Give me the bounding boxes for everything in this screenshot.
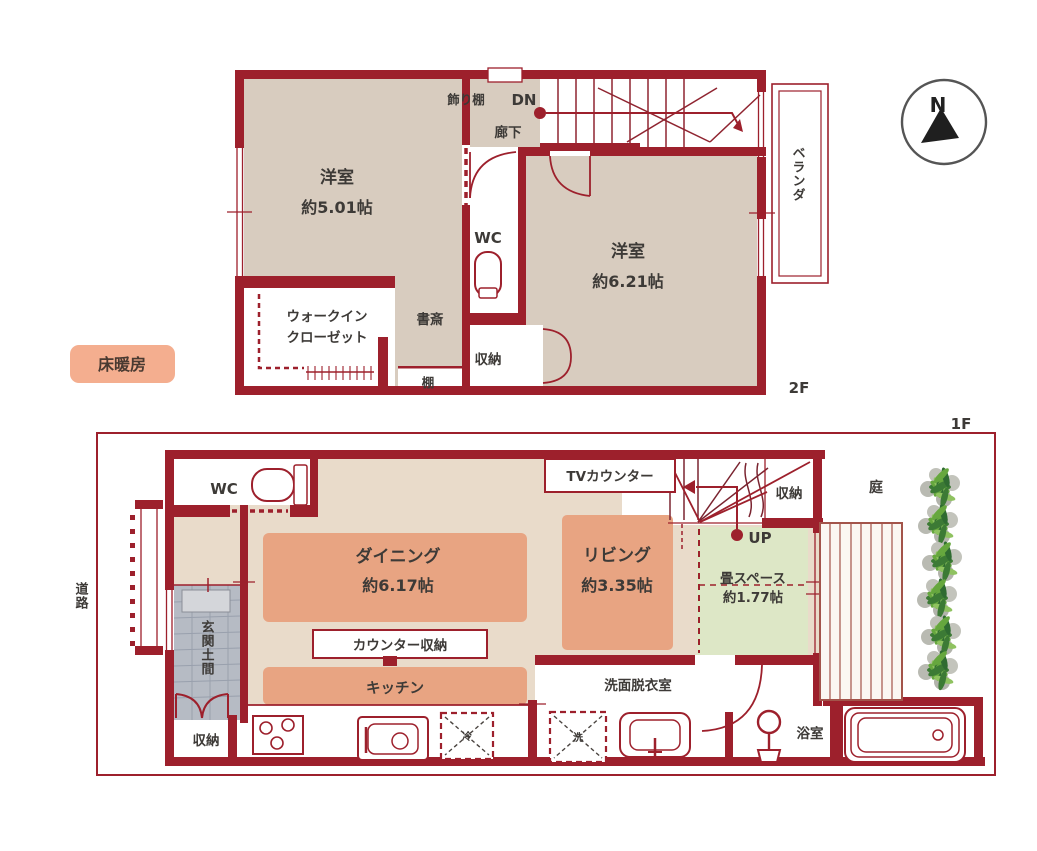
label-2f: 2F <box>789 379 810 397</box>
down-route <box>534 107 743 132</box>
bathtub-icon <box>845 708 965 762</box>
sink-icon <box>358 717 428 760</box>
label-corridor: 廊下 <box>495 124 523 141</box>
label-kitchen: キッチン <box>366 680 424 697</box>
label-road: 道路 <box>73 581 89 610</box>
garden-hedge <box>917 466 962 691</box>
plant-cluster <box>922 540 962 582</box>
toilet-1f-icon <box>252 465 307 505</box>
label-western-large-name: 洋室 <box>611 241 645 262</box>
plant-cluster <box>921 614 961 656</box>
label-living-size: 約3.35帖 <box>581 576 652 595</box>
stove-icon <box>253 716 303 754</box>
label-dining-size: 約6.17帖 <box>362 576 433 595</box>
floor-plan-svg: 飾り棚 DN 廊下 洋室 約5.01帖 WC 洋室 約6.21帖 ウォークイン … <box>0 0 1037 851</box>
label-counter-storage: カウンター収納 <box>353 637 448 654</box>
label-wic-line2: クローゼット <box>287 329 368 346</box>
label-garden: 庭 <box>869 479 884 496</box>
label-washroom: 洗面脱衣室 <box>604 677 672 694</box>
label-tv-counter: TVカウンター <box>566 469 653 485</box>
label-bathroom: 浴室 <box>797 725 825 742</box>
label-wic-line1: ウォークイン <box>287 309 368 325</box>
label-wc-2f: WC <box>474 229 502 247</box>
label-shelf: 棚 <box>422 375 435 390</box>
floor-plan-image: 飾り棚 DN 廊下 洋室 約5.01帖 WC 洋室 約6.21帖 ウォークイン … <box>0 0 1037 851</box>
label-western-large-size: 約6.21帖 <box>592 272 663 291</box>
vanity-icon <box>620 713 690 757</box>
label-living-name: リビング <box>583 545 651 566</box>
label-tatami-size: 約1.77帖 <box>723 589 784 606</box>
label-storage-upper: 収納 <box>776 485 803 502</box>
plant-cluster <box>918 503 958 545</box>
label-entrance: 玄関土間 <box>199 619 215 676</box>
label-fridge-mark: 冷 <box>462 730 472 743</box>
floor-heating-badge: 床暖房 <box>70 345 175 383</box>
wood-deck <box>820 523 902 700</box>
plant-cluster <box>917 577 957 619</box>
label-wc-1f: WC <box>210 480 238 498</box>
label-western-small-name: 洋室 <box>320 167 354 188</box>
floor-heating-label: 床暖房 <box>98 355 146 374</box>
label-veranda: ベランダ <box>790 146 806 202</box>
label-display-shelf: 飾り棚 <box>447 92 485 107</box>
label-western-small-size: 約5.01帖 <box>301 198 372 217</box>
label-dining-name: ダイニング <box>356 546 441 567</box>
floor1-plan: WC TVカウンター 収納 UP ダイニング 約6.17帖 リビング 約3.35… <box>73 415 996 775</box>
display-shelf-box <box>488 68 522 82</box>
plant-cluster <box>918 649 958 691</box>
compass: N <box>902 80 986 164</box>
shoe-cabinet <box>182 590 230 612</box>
room-2f-western-large-floor <box>526 156 757 386</box>
floor2-plan: 飾り棚 DN 廊下 洋室 約5.01帖 WC 洋室 約6.21帖 ウォークイン … <box>227 68 828 397</box>
label-tatami-name: 畳スペース <box>720 571 786 587</box>
entrance-porch <box>130 500 163 655</box>
toilet-2f-icon <box>475 252 501 298</box>
label-washer-mark: 洗 <box>573 731 583 744</box>
plant-cluster <box>920 466 960 508</box>
label-storage-lower: 収納 <box>193 732 220 749</box>
label-dn: DN <box>511 91 536 109</box>
label-up: UP <box>748 529 771 547</box>
label-study: 書斎 <box>417 311 444 328</box>
label-storage-2f: 収納 <box>475 351 502 368</box>
label-1f: 1F <box>951 415 972 433</box>
